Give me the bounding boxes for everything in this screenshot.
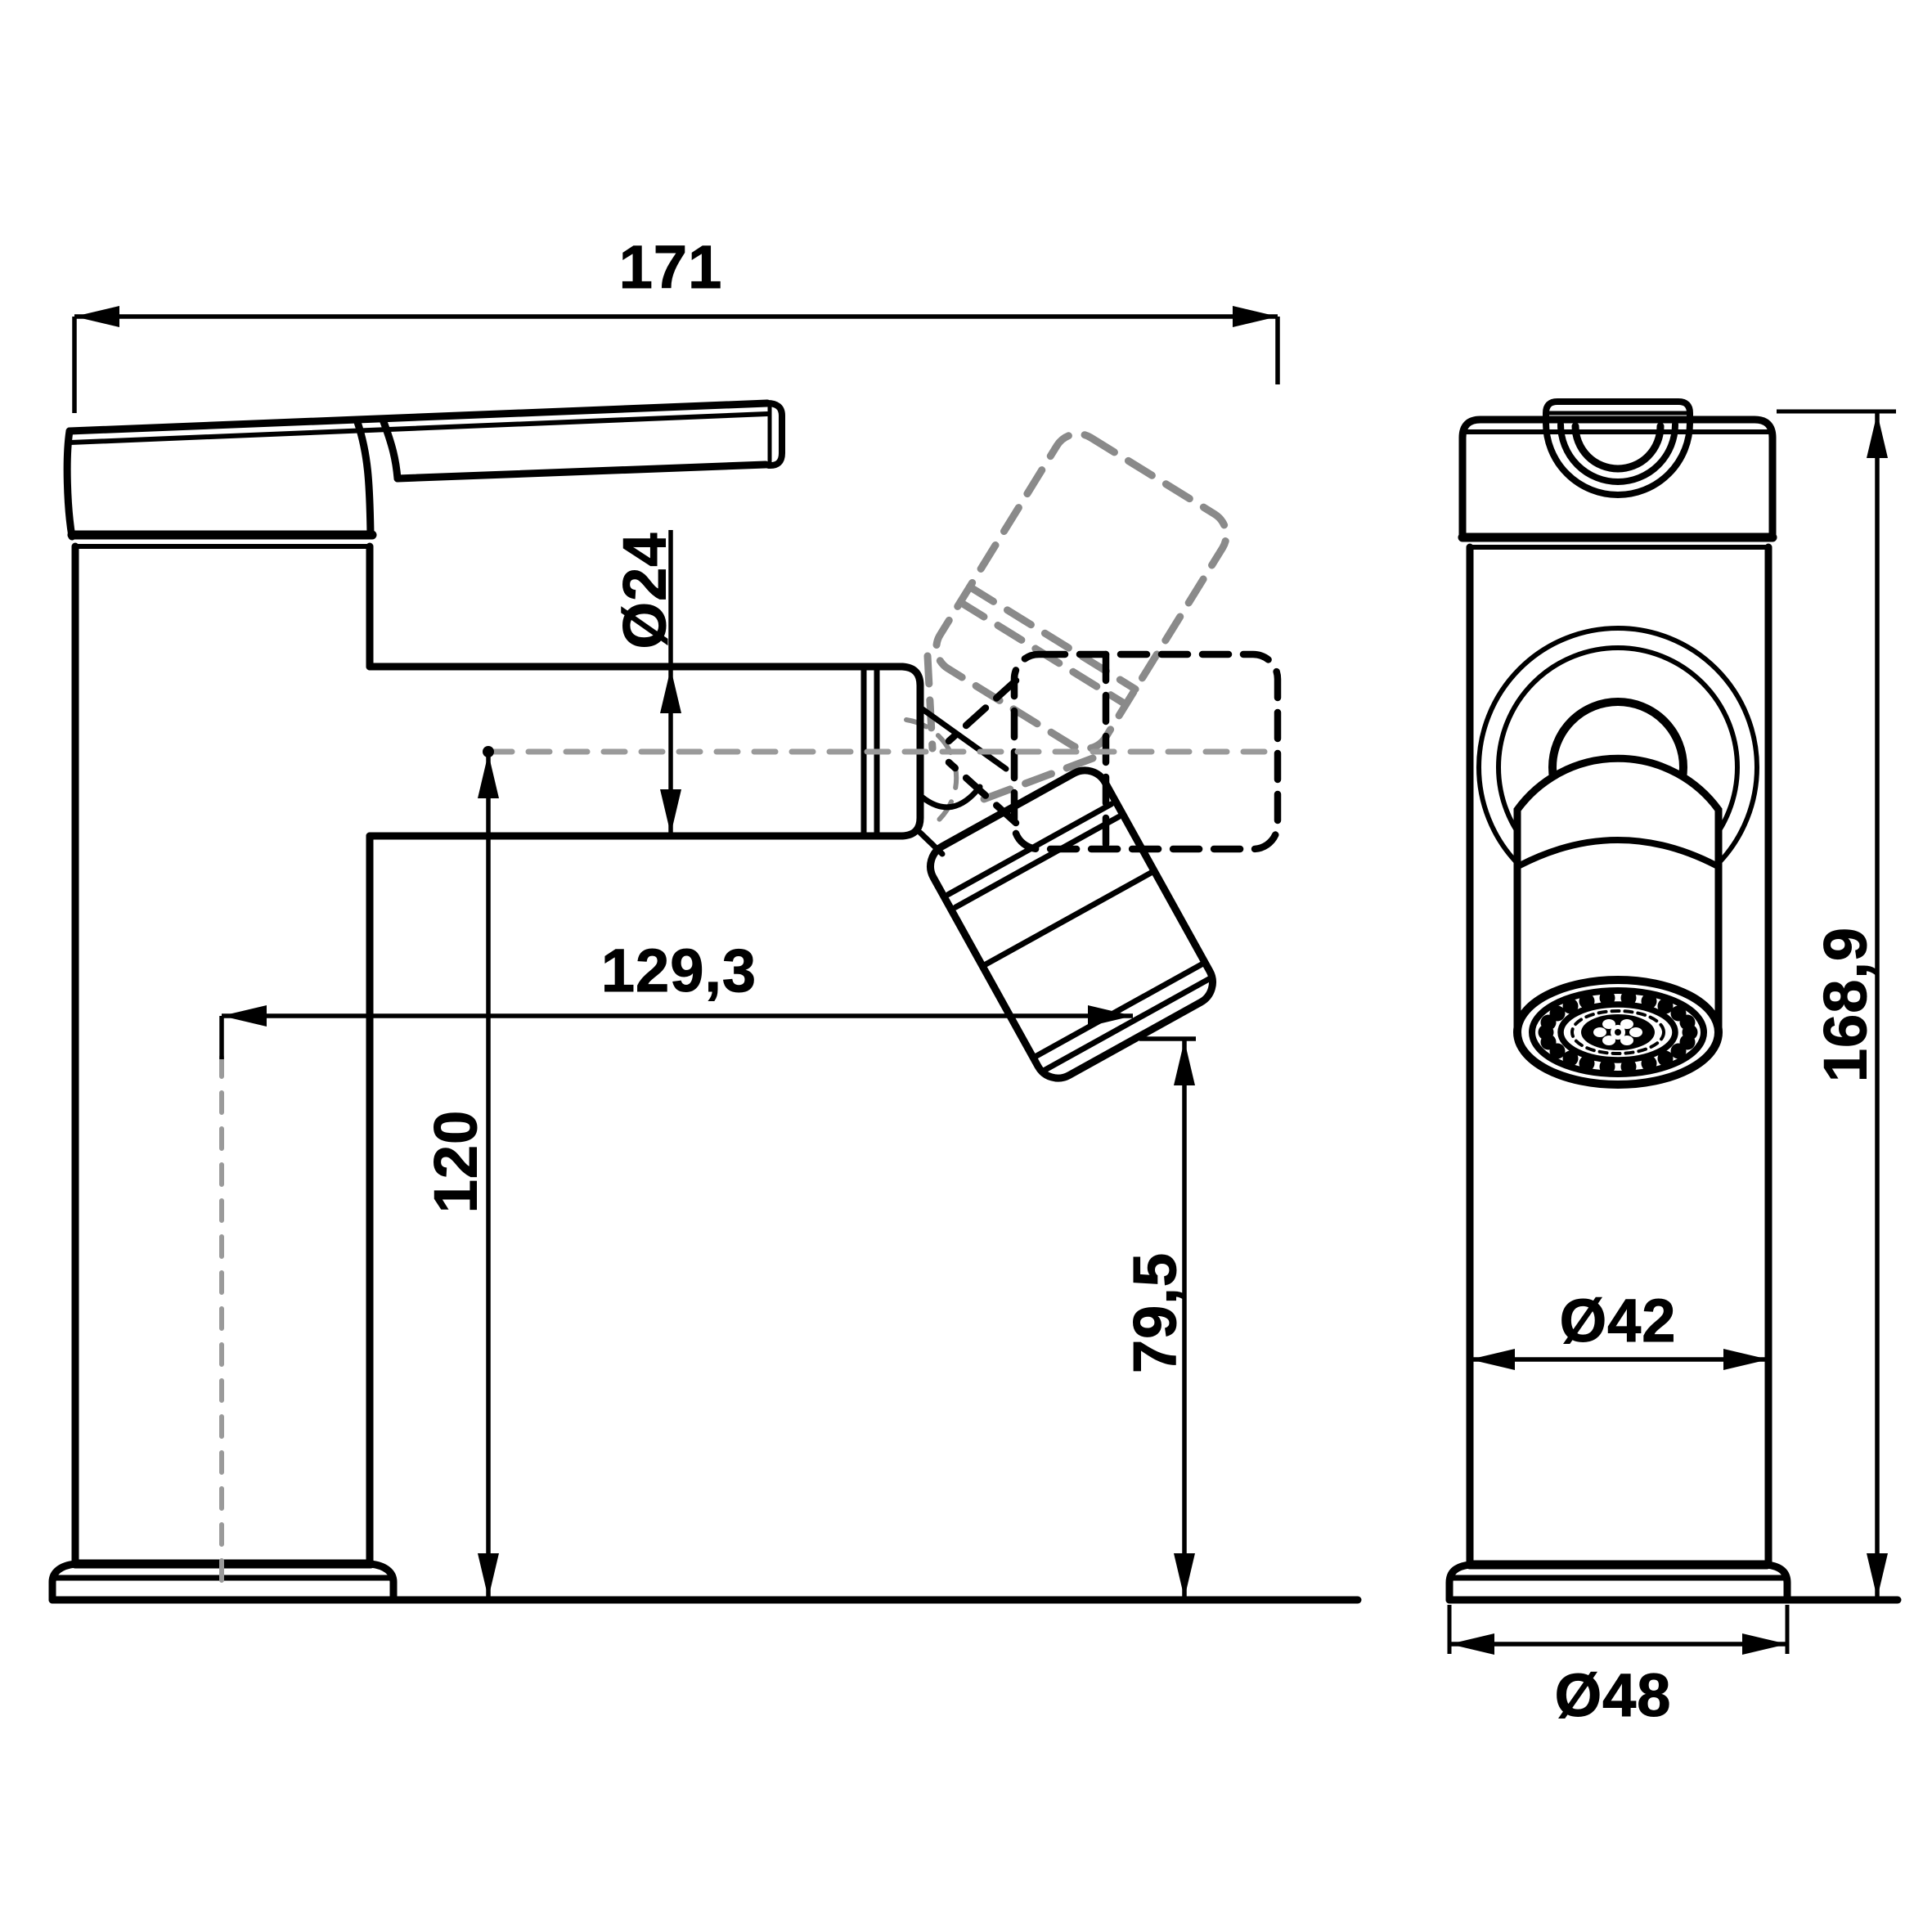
dimension-outlet-height: 79,5: [1121, 1039, 1197, 1600]
dim-label-base-diameter: Ø48: [1555, 1661, 1672, 1729]
dim-label-overall-width: 171: [619, 233, 722, 301]
dimension-width-overall: 171: [74, 233, 1278, 413]
faucet-base-front: [1449, 1565, 1787, 1600]
dim-label-spout-center-height: 120: [422, 1110, 490, 1213]
dimension-spout-center-height: 120: [422, 746, 500, 1600]
dim-label-body-diameter: Ø42: [1560, 1287, 1677, 1355]
faucet-technical-drawing: 171 Ø24 129,3 120 79,5: [0, 0, 1932, 1932]
handle-front: [1546, 402, 1690, 495]
dim-label-spout-reach: 129,3: [601, 937, 757, 1004]
dim-label-total-height: 168,9: [1812, 927, 1880, 1082]
centerlines: [222, 752, 1266, 1595]
dimension-base-diameter: Ø48: [1449, 1605, 1787, 1729]
spout-raised-ghost-outline: [906, 425, 1235, 822]
handle-lever: [67, 403, 782, 537]
dimension-spout-diameter: Ø24: [611, 530, 682, 836]
dim-label-outlet-height: 79,5: [1121, 1252, 1189, 1373]
dim-label-spout-diameter: Ø24: [611, 532, 679, 649]
dimension-total-height: 168,9: [1777, 411, 1896, 1600]
drawing-page: 171 Ø24 129,3 120 79,5: [0, 0, 1932, 1932]
dimension-body-diameter: Ø42: [1470, 1287, 1768, 1370]
